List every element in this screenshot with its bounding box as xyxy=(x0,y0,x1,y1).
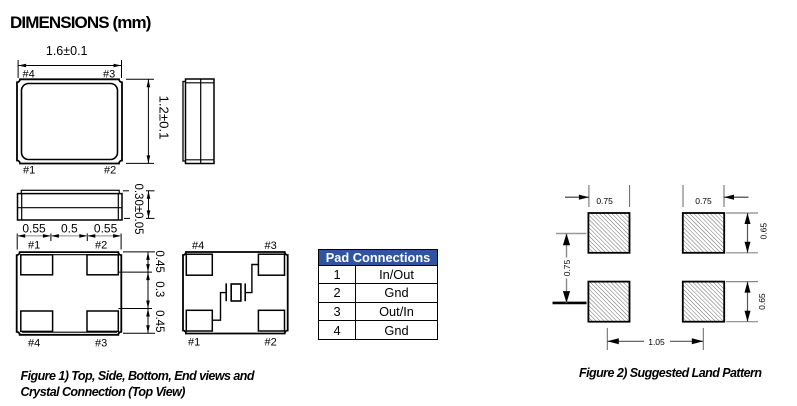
svg-text:0.3: 0.3 xyxy=(153,281,165,297)
svg-text:#1: #1 xyxy=(188,337,200,349)
svg-text:0.55: 0.55 xyxy=(22,222,46,236)
svg-text:#4: #4 xyxy=(28,338,40,350)
svg-text:1.2±0.1: 1.2±0.1 xyxy=(157,96,172,140)
svg-text:#4: #4 xyxy=(192,240,204,252)
svg-text:1.6±0.1: 1.6±0.1 xyxy=(46,44,88,58)
svg-text:#3: #3 xyxy=(95,338,107,350)
svg-text:0.65: 0.65 xyxy=(757,293,767,310)
svg-text:0.65: 0.65 xyxy=(759,223,769,240)
svg-text:#1: #1 xyxy=(28,240,40,252)
svg-text:#2: #2 xyxy=(104,165,116,177)
svg-text:0.45: 0.45 xyxy=(153,310,165,332)
svg-text:0.30±0.05: 0.30±0.05 xyxy=(132,183,144,234)
svg-text:0.55: 0.55 xyxy=(94,222,118,236)
svg-text:#2: #2 xyxy=(265,337,277,349)
svg-text:#2: #2 xyxy=(95,240,107,252)
svg-text:#1: #1 xyxy=(23,165,35,177)
svg-text:0.45: 0.45 xyxy=(153,250,165,272)
svg-text:#3: #3 xyxy=(265,240,277,252)
svg-text:#4: #4 xyxy=(23,69,35,81)
svg-text:0.75: 0.75 xyxy=(596,196,613,206)
svg-text:1.05: 1.05 xyxy=(648,337,665,347)
svg-text:0.75: 0.75 xyxy=(562,259,572,276)
svg-text:0.75: 0.75 xyxy=(695,196,712,206)
svg-text:0.5: 0.5 xyxy=(61,222,78,236)
svg-text:#3: #3 xyxy=(103,69,115,81)
